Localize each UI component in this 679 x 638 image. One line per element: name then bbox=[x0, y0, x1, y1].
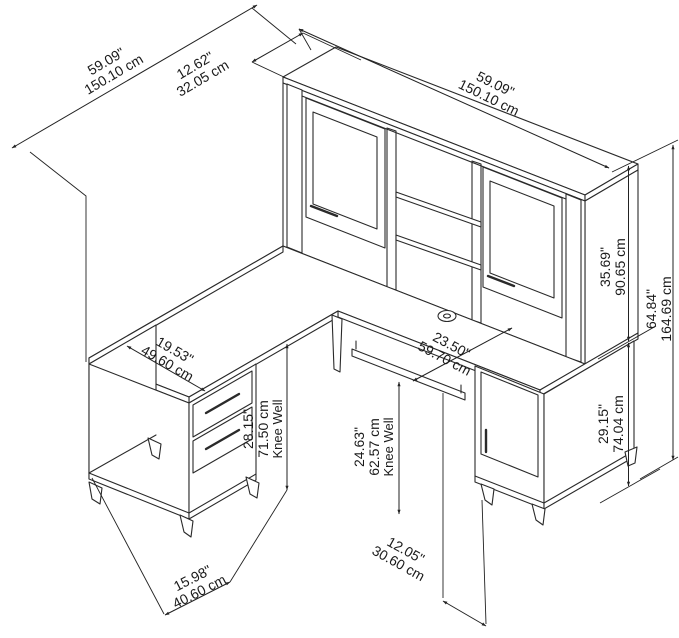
dim-value-cm: 62.57 cm bbox=[367, 417, 382, 476]
dim-note: Knee Well bbox=[271, 399, 285, 458]
dim-value-in: 28.15" bbox=[241, 399, 256, 458]
dim-label-hutch-height: 35.69" 90.65 cm bbox=[598, 238, 628, 296]
dim-value-cm: 74.04 cm bbox=[611, 395, 626, 453]
hutch-right-divider bbox=[472, 161, 481, 323]
dim-value-cm: 90.65 cm bbox=[613, 238, 628, 296]
hutch-left-upright bbox=[287, 84, 302, 253]
dim-label-desk-height: 29.15" 74.04 cm bbox=[596, 395, 626, 453]
dim-value-in: 35.69" bbox=[598, 238, 613, 296]
dim-label-overall-height: 64.84" 164.69 cm bbox=[644, 276, 674, 341]
hutch-right-upright bbox=[566, 194, 581, 362]
dim-value-in: 29.15" bbox=[596, 395, 611, 453]
diagram-canvas: 59.09" 150.10 cm 12.62" 32.05 cm 59.09" … bbox=[0, 0, 679, 638]
dim-note: Knee Well bbox=[382, 417, 396, 476]
dim-value-cm: 71.50 cm bbox=[256, 399, 271, 458]
dim-value-cm: 164.69 cm bbox=[659, 276, 674, 341]
grommet-center bbox=[444, 314, 451, 318]
corner-post bbox=[332, 315, 342, 372]
dim-label-left-knee-well: 28.15" 71.50 cm Knee Well bbox=[241, 399, 285, 458]
dim-label-center-knee-well: 24.63" 62.57 cm Knee Well bbox=[352, 417, 396, 476]
hutch-left-divider bbox=[387, 128, 396, 290]
dim-value-in: 24.63" bbox=[352, 417, 367, 476]
desk-line-drawing bbox=[0, 0, 679, 638]
dim-value-in: 64.84" bbox=[644, 276, 659, 341]
